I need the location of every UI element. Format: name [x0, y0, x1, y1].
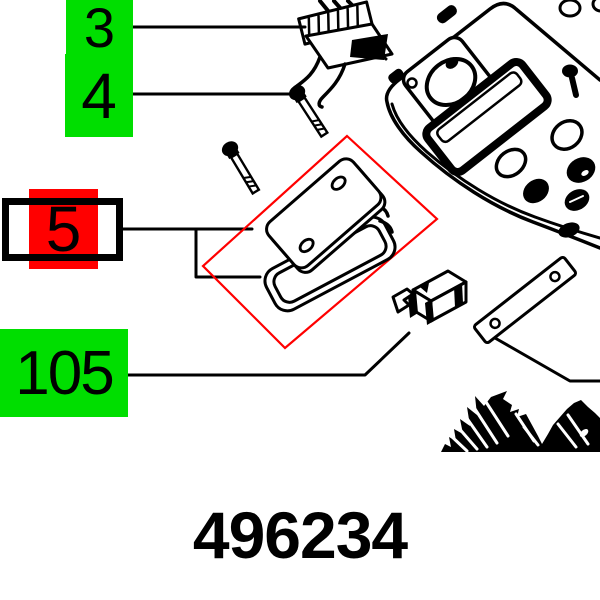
callout-3-label: 3 [84, 0, 115, 60]
leader-105 [128, 333, 409, 375]
housing-screw-icon [562, 65, 578, 96]
gear-housing [387, 0, 600, 248]
callout-3[interactable]: 3 [66, 0, 133, 54]
coil-assembly [293, 1, 392, 107]
cover-plate-assembly [260, 155, 400, 316]
callout-105-label: 105 [15, 338, 112, 409]
housing-hole-top-circle [560, 0, 580, 16]
armature-silhouette [441, 391, 600, 452]
exploded-parts-diagram: 3 4 5 105 496234 [0, 0, 600, 600]
switch-block [393, 271, 466, 325]
spacer-bar [473, 256, 576, 344]
leader-5 [123, 229, 260, 277]
screw-part4 [286, 82, 331, 139]
leader-offscreen [495, 338, 600, 381]
coil-wire [319, 64, 345, 107]
selection-frame [2, 198, 123, 261]
screw-second [219, 138, 263, 196]
callout-105[interactable]: 105 [0, 329, 128, 417]
callout-4-label: 4 [81, 59, 117, 133]
callout-4[interactable]: 4 [65, 54, 133, 137]
drawing-number: 496234 [0, 497, 600, 573]
